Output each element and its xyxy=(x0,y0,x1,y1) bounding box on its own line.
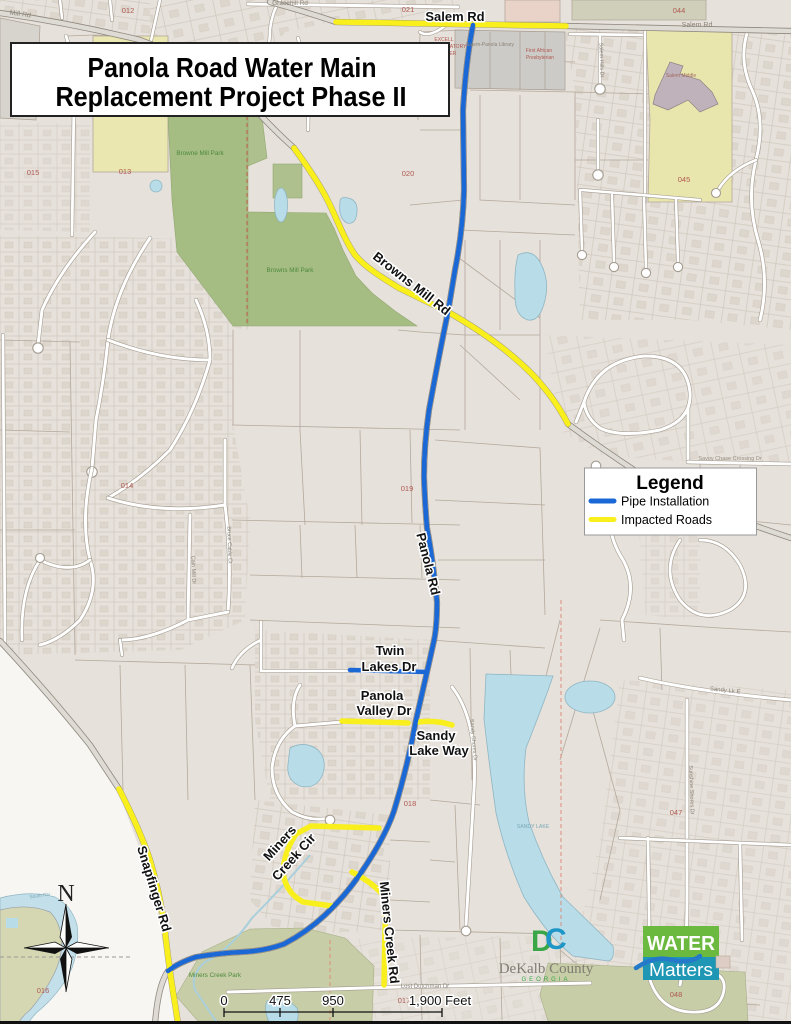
svg-text:Sandy: Sandy xyxy=(416,728,456,743)
svg-text:Salem-Panola Library: Salem-Panola Library xyxy=(466,42,515,48)
svg-text:Twin: Twin xyxy=(376,643,405,658)
svg-text:Legend: Legend xyxy=(636,473,704,494)
svg-text:014: 014 xyxy=(121,481,134,490)
svg-text:DeKalb County: DeKalb County xyxy=(499,961,594,977)
svg-text:0: 0 xyxy=(220,993,227,1008)
svg-text:Salem Hills Dr: Salem Hills Dr xyxy=(597,42,604,77)
svg-text:Lake Way: Lake Way xyxy=(409,743,469,758)
svg-text:020: 020 xyxy=(402,169,415,178)
svg-text:Lost Dutchman Dr: Lost Dutchman Dr xyxy=(401,984,449,990)
svg-text:Valley Dr: Valley Dr xyxy=(357,703,412,718)
svg-text:1,900 Feet: 1,900 Feet xyxy=(409,993,472,1008)
svg-text:018: 018 xyxy=(404,799,417,808)
svg-text:SANDY LAKE: SANDY LAKE xyxy=(517,824,550,830)
svg-text:Salem Middle: Salem Middle xyxy=(666,73,697,79)
svg-text:021: 021 xyxy=(402,5,415,14)
svg-text:WATER: WATER xyxy=(647,933,716,955)
svg-text:N: N xyxy=(57,881,74,907)
svg-text:Replacement Project Phase II: Replacement Project Phase II xyxy=(56,81,407,112)
svg-text:Savoy Chase Crossing Dr: Savoy Chase Crossing Dr xyxy=(698,456,761,462)
svg-text:Cain Mill Dr: Cain Mill Dr xyxy=(190,556,197,585)
svg-text:012: 012 xyxy=(122,6,135,15)
svg-text:Miners Creek Park: Miners Creek Park xyxy=(189,972,242,979)
svg-text:048: 048 xyxy=(670,990,683,999)
svg-text:GEORGIA: GEORGIA xyxy=(521,977,570,983)
svg-text:475: 475 xyxy=(269,993,291,1008)
svg-text:Gracehill Rd: Gracehill Rd xyxy=(272,0,308,7)
svg-text:C: C xyxy=(545,923,567,956)
svg-text:Panola Road Water Main: Panola Road Water Main xyxy=(88,52,377,83)
svg-text:015: 015 xyxy=(27,168,40,177)
svg-text:First African: First African xyxy=(526,48,553,54)
svg-text:Pipe Installation: Pipe Installation xyxy=(621,495,709,509)
svg-text:950: 950 xyxy=(322,993,344,1008)
svg-text:Panola: Panola xyxy=(361,688,404,703)
svg-text:Impacted Roads: Impacted Roads xyxy=(621,513,712,527)
svg-text:047: 047 xyxy=(670,808,683,817)
svg-text:Salem Rd: Salem Rd xyxy=(682,22,713,29)
svg-text:Presbyterian: Presbyterian xyxy=(526,55,554,61)
svg-text:016: 016 xyxy=(37,986,50,995)
svg-text:Browns Mill Park: Browns Mill Park xyxy=(267,267,315,274)
svg-text:Browne Mill Park: Browne Mill Park xyxy=(176,150,224,157)
svg-text:Salem Rd: Salem Rd xyxy=(425,9,484,24)
svg-text:019: 019 xyxy=(401,484,414,493)
svg-text:044: 044 xyxy=(673,6,686,15)
svg-text:Lakes Dr: Lakes Dr xyxy=(362,659,417,674)
svg-text:045: 045 xyxy=(678,175,691,184)
svg-text:013: 013 xyxy=(119,167,132,176)
